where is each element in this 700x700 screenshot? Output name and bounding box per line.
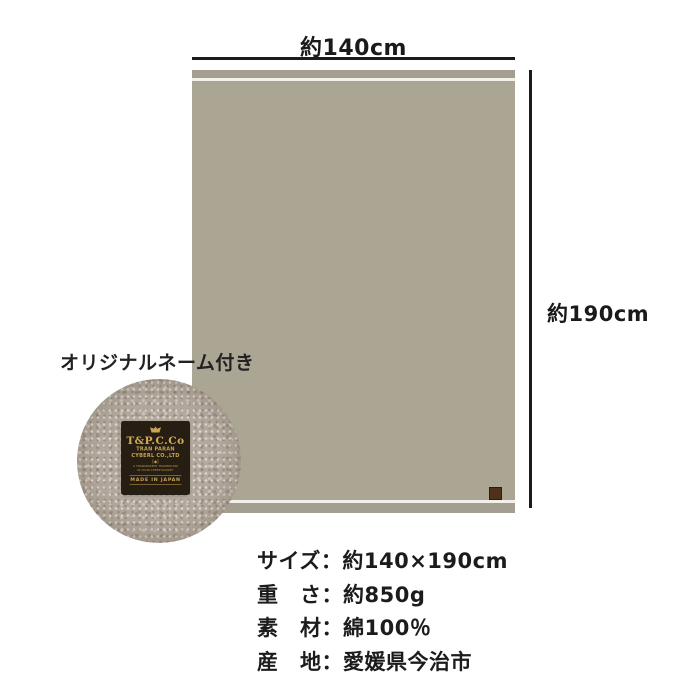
spec-label: サイズ bbox=[257, 549, 321, 573]
spec-row-origin: 産 地：愛媛県今治市 bbox=[257, 646, 508, 680]
spec-separator: ： bbox=[322, 583, 344, 607]
spec-label: 重 さ bbox=[257, 583, 322, 607]
woven-brand-label: T&P.C.Co TRAN PARAN CYBERL CO.,LTD [◆] A… bbox=[122, 422, 189, 494]
width-dimension-line bbox=[192, 57, 515, 60]
spec-separator: ： bbox=[322, 616, 344, 640]
label-brand-text: T&P.C.Co bbox=[122, 435, 189, 447]
spec-label: 産 地 bbox=[257, 650, 322, 674]
fabric-closeup-photo: T&P.C.Co TRAN PARAN CYBERL CO.,LTD [◆] A… bbox=[77, 379, 241, 543]
spec-row-material: 素 材：綿100％ bbox=[257, 612, 508, 646]
spec-row-size: サイズ：約140×190cm bbox=[257, 545, 508, 579]
blanket-body bbox=[192, 81, 515, 500]
label-sub-text-2: CYBERL CO.,LTD bbox=[122, 453, 189, 459]
spec-value: 愛媛県今治市 bbox=[343, 650, 472, 674]
spec-value: 綿100％ bbox=[343, 616, 431, 640]
crown-icon bbox=[150, 427, 161, 433]
label-sub-text-1: TRAN PARAN bbox=[122, 447, 189, 453]
blanket-top-band bbox=[192, 70, 515, 78]
label-micro-text-1: A TRANSPARENT TRAMROUND bbox=[127, 465, 184, 468]
blanket-diagram bbox=[192, 70, 515, 513]
height-dimension-line bbox=[529, 70, 532, 508]
spec-label: 素 材 bbox=[257, 616, 322, 640]
blanket-bottom-band bbox=[192, 503, 515, 514]
label-footer-text: MADE IN JAPAN bbox=[122, 477, 189, 483]
height-dimension-label: 約190cm bbox=[547, 298, 649, 328]
spec-value: 約140×190cm bbox=[342, 549, 508, 573]
label-divider-bottom bbox=[129, 485, 181, 486]
product-size-infographic: 約140cm 約190cm オリジナルネーム付き T&P.C.Co TRAN P… bbox=[0, 0, 700, 700]
spec-list: サイズ：約140×190cm 重 さ：約850g 素 材：綿100％ 産 地：愛… bbox=[257, 545, 508, 679]
spec-separator: ： bbox=[322, 650, 344, 674]
label-micro-text-2: IN YOUR CHEEP KOOKEY bbox=[127, 469, 184, 472]
brand-corner-tag bbox=[489, 487, 502, 500]
spec-row-weight: 重 さ：約850g bbox=[257, 579, 508, 613]
label-divider bbox=[129, 475, 181, 476]
inset-caption: オリジナルネーム付き bbox=[60, 348, 254, 375]
spec-separator: ： bbox=[321, 549, 343, 573]
spec-value: 約850g bbox=[343, 583, 425, 607]
